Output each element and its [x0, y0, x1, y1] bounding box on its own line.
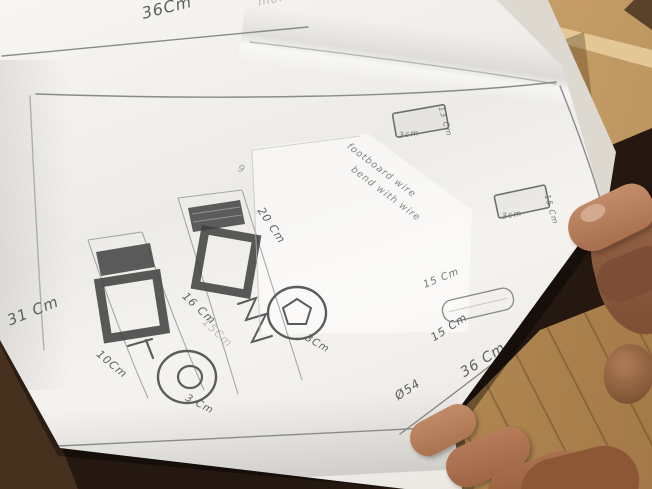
- mid-strip-top: [178, 190, 242, 198]
- dim-label-mid-strip-faint: 15Cm: [200, 316, 235, 350]
- photo-scene: 36Cm mor 31 Cm 10Cm 3 Cm 16 Cm 20 Cm 3Cm…: [0, 0, 652, 489]
- dim-label-mid-strip-tick: 9: [236, 163, 246, 176]
- dim-label-top-width: 36Cm: [140, 0, 194, 23]
- dim-label-mid-strip-hole: 3Cm: [303, 333, 331, 356]
- dim-label-left-strip-width: 10Cm: [94, 348, 130, 381]
- bracket-ticks: [128, 339, 153, 358]
- paper-shading-left: [0, 60, 70, 390]
- u-frame-sketch: [196, 230, 257, 294]
- hatched-bar-sketch: [188, 200, 245, 232]
- dim-label-slat-top-thickness: 3cm: [398, 128, 419, 140]
- left-strip-top: [88, 232, 142, 240]
- chair-frame-sketch: [99, 274, 165, 338]
- dim-label-slat-right-thickness: 3cm: [501, 209, 523, 221]
- dim-label-slat-top-length: 13 Cm: [437, 105, 454, 137]
- dim-label-slat-right-length: 15 Cm: [543, 193, 560, 225]
- donut-sketch-inner: [178, 366, 202, 388]
- chair-bar-sketch: [96, 243, 155, 276]
